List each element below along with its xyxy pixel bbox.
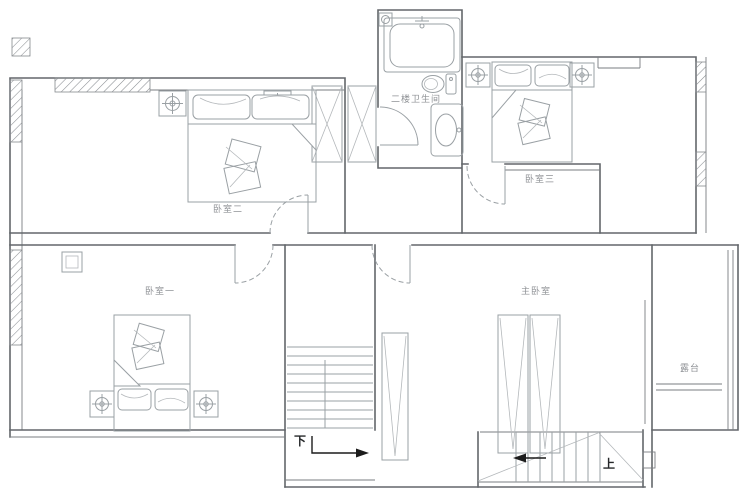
door-bedroom-three (467, 166, 505, 204)
floor-plan-drawing: 卧室二 卧室三 卧室一 主卧室 二楼卫生间 露台 下 上 (0, 0, 750, 499)
bed-bedroom-two (159, 90, 316, 202)
ceiling-lamp-icon (162, 93, 183, 114)
stair-down-arrow (312, 436, 356, 453)
window-hatches (10, 38, 706, 345)
duct-box (62, 252, 82, 272)
pillow (155, 389, 188, 410)
label-stair-up: 上 (603, 456, 615, 471)
room-labels: 卧室二 卧室三 卧室一 主卧室 二楼卫生间 露台 下 上 (145, 93, 700, 471)
floor-plan-canvas: 卧室二 卧室三 卧室一 主卧室 二楼卫生间 露台 下 上 (0, 0, 750, 499)
doors (235, 107, 505, 283)
washbasin (431, 104, 463, 156)
door-bedroom-one (235, 245, 273, 283)
wardrobe-master (382, 315, 560, 460)
label-bathroom: 二楼卫生间 (391, 93, 441, 105)
window-hatch-right-mid (696, 152, 706, 186)
label-bedroom-one: 卧室一 (145, 285, 175, 297)
window-hatch-left-upper (10, 80, 22, 142)
quilt-decoration (224, 139, 261, 194)
pillow (118, 389, 151, 410)
ceiling-lamp-icon (92, 394, 112, 414)
label-terrace: 露台 (680, 362, 700, 374)
blanket-fold (292, 124, 316, 150)
quilt-decoration (518, 98, 550, 144)
label-master-bedroom: 主卧室 (521, 285, 551, 297)
column-hatch-top-left (12, 38, 30, 56)
bed-bedroom-one (90, 315, 218, 431)
floor-drain (379, 13, 392, 26)
ceiling-lamp-icon (572, 65, 592, 85)
window-hatch-left-lower (10, 250, 22, 345)
door-bathroom (380, 107, 418, 145)
bathtub (384, 16, 460, 72)
window-hatch-top-left (55, 78, 150, 92)
wall-pier (643, 452, 655, 468)
cabinet-pair (312, 86, 376, 162)
quilt-decoration (132, 323, 164, 369)
ceiling-lamp-icon (468, 65, 488, 85)
pillow (495, 65, 531, 86)
ceiling-lamp-icon (196, 394, 216, 414)
pillow (535, 65, 569, 86)
label-bedroom-three: 卧室三 (525, 173, 555, 185)
blanket-fold (114, 360, 140, 386)
door-master-bedroom (372, 245, 410, 283)
blanket-fold (492, 90, 516, 118)
door-bedroom-two (270, 195, 308, 233)
bed-bedroom-three (466, 62, 594, 162)
label-stair-down: 下 (294, 434, 306, 448)
toilet (422, 74, 456, 94)
window-hatch-right-upper (696, 62, 706, 92)
label-bedroom-two: 卧室二 (213, 203, 243, 215)
